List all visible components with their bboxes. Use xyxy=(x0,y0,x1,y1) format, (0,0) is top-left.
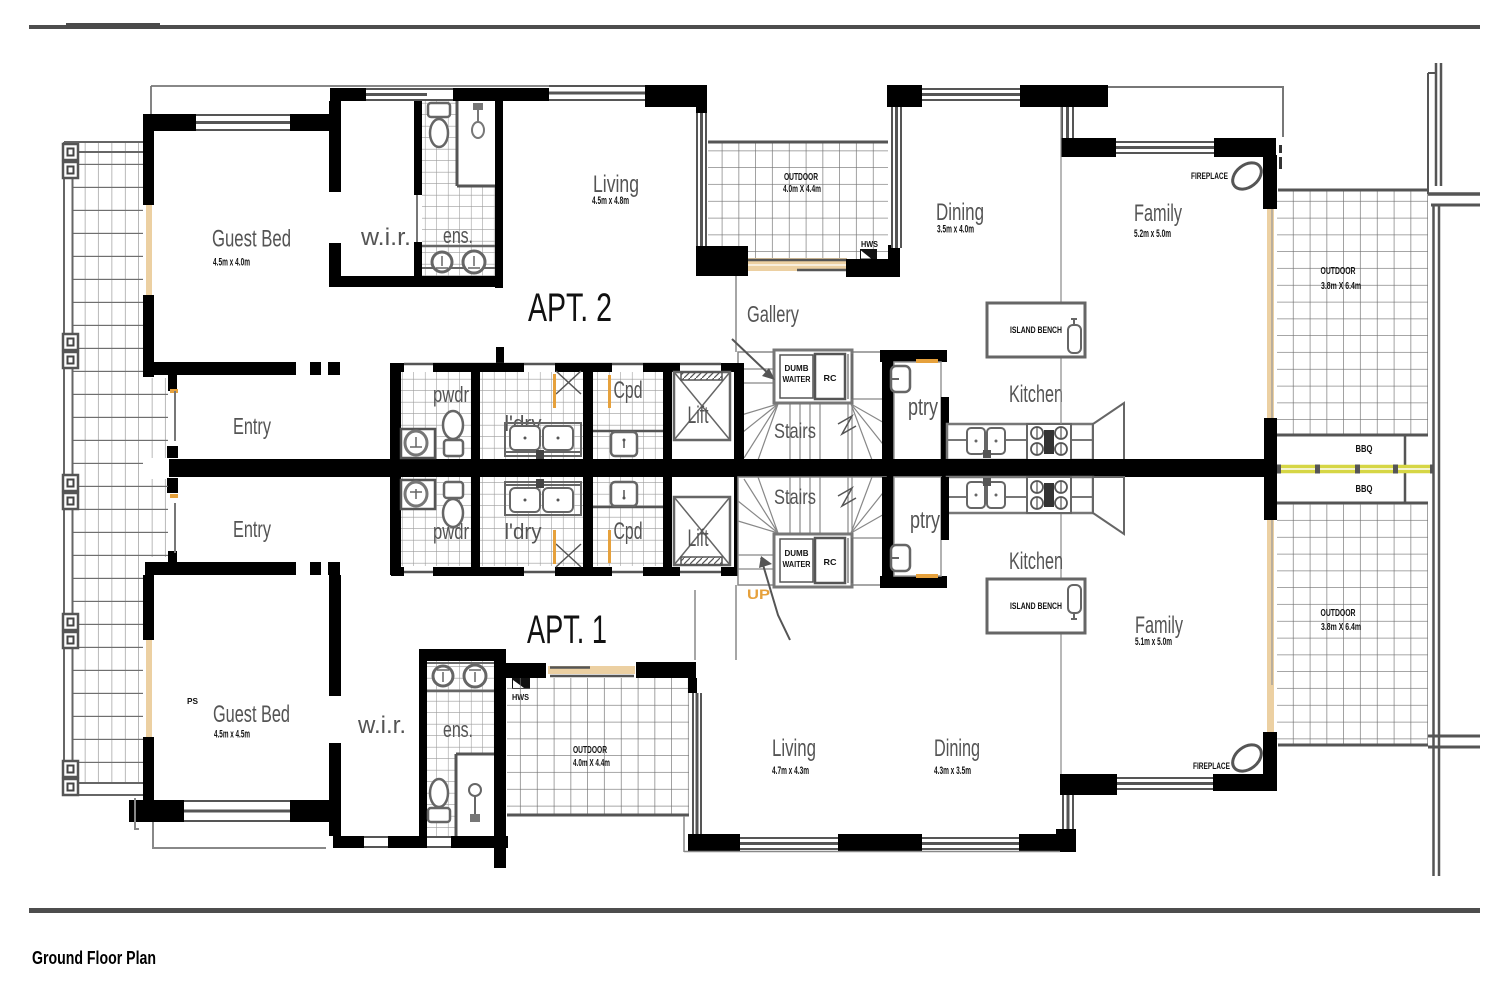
svg-text:OUTDOOR: OUTDOOR xyxy=(573,744,607,756)
svg-text:3.8m X 6.4m: 3.8m X 6.4m xyxy=(1321,621,1361,633)
svg-text:Stairs: Stairs xyxy=(774,486,816,509)
svg-text:Lift: Lift xyxy=(688,525,709,552)
svg-text:DUMB: DUMB xyxy=(785,364,809,373)
svg-text:4.5m x 4.0m: 4.5m x 4.0m xyxy=(213,257,250,269)
svg-text:Living: Living xyxy=(772,735,816,762)
svg-text:OUTDOOR: OUTDOOR xyxy=(1321,265,1356,277)
svg-text:Entry: Entry xyxy=(233,413,271,439)
svg-text:WAITER: WAITER xyxy=(783,375,811,384)
svg-text:Cpd: Cpd xyxy=(614,518,643,545)
svg-text:3.8m X 6.4m: 3.8m X 6.4m xyxy=(1321,280,1361,292)
svg-text:4.5m x 4.5m: 4.5m x 4.5m xyxy=(214,729,250,741)
svg-text:ptry: ptry xyxy=(910,507,940,534)
svg-text:Dining: Dining xyxy=(936,199,984,226)
svg-text:APT. 2: APT. 2 xyxy=(528,286,612,330)
svg-text:4.5m x 4.8m: 4.5m x 4.8m xyxy=(592,195,629,207)
svg-text:UP: UP xyxy=(747,586,770,602)
svg-text:ISLAND BENCH: ISLAND BENCH xyxy=(1010,601,1062,611)
svg-text:ISLAND BENCH: ISLAND BENCH xyxy=(1010,325,1062,335)
svg-text:pwdr: pwdr xyxy=(433,382,469,407)
svg-text:ens.: ens. xyxy=(443,223,473,248)
svg-text:FIREPLACE: FIREPLACE xyxy=(1191,171,1228,181)
svg-text:4.3m x 3.5m: 4.3m x 3.5m xyxy=(934,765,971,777)
svg-text:FIREPLACE: FIREPLACE xyxy=(1193,761,1230,771)
svg-text:APT. 1: APT. 1 xyxy=(527,608,607,652)
svg-text:Cpd: Cpd xyxy=(614,377,643,404)
svg-text:Guest Bed: Guest Bed xyxy=(212,226,291,253)
svg-text:Family: Family xyxy=(1135,612,1183,639)
svg-text:RC: RC xyxy=(824,373,837,383)
svg-text:w.i.r.: w.i.r. xyxy=(357,712,406,739)
svg-text:Kitchen: Kitchen xyxy=(1009,548,1063,575)
svg-text:Kitchen: Kitchen xyxy=(1009,381,1063,408)
svg-text:4.0m X 4.4m: 4.0m X 4.4m xyxy=(573,757,610,769)
svg-text:4.7m x 4.3m: 4.7m x 4.3m xyxy=(772,765,809,777)
svg-text:Guest Bed: Guest Bed xyxy=(213,701,290,728)
svg-text:3.5m x 4.0m: 3.5m x 4.0m xyxy=(937,224,974,236)
svg-text:5.1m x 5.0m: 5.1m x 5.0m xyxy=(1135,636,1172,648)
svg-text:OUTDOOR: OUTDOOR xyxy=(784,171,818,183)
svg-text:Lift: Lift xyxy=(688,402,709,429)
svg-text:5.2m x 5.0m: 5.2m x 5.0m xyxy=(1134,228,1171,240)
svg-text:BBQ: BBQ xyxy=(1356,444,1373,455)
svg-text:Living: Living xyxy=(593,171,639,198)
svg-text:OUTDOOR: OUTDOOR xyxy=(1321,607,1356,619)
svg-text:Entry: Entry xyxy=(233,516,271,542)
svg-text:WAITER: WAITER xyxy=(783,560,811,569)
svg-text:Family: Family xyxy=(1134,200,1182,227)
svg-text:Stairs: Stairs xyxy=(774,420,816,443)
svg-text:BBQ: BBQ xyxy=(1356,484,1373,495)
svg-text:4.0m X 4.4m: 4.0m X 4.4m xyxy=(783,183,821,195)
svg-text:Ground Floor Plan: Ground Floor Plan xyxy=(32,948,156,968)
svg-text:l'dry: l'dry xyxy=(505,519,542,544)
svg-text:RC: RC xyxy=(824,557,837,567)
svg-text:w.i.r.: w.i.r. xyxy=(360,224,411,251)
svg-text:Gallery: Gallery xyxy=(747,301,799,327)
svg-text:DUMB: DUMB xyxy=(785,549,809,558)
svg-text:Dining: Dining xyxy=(934,735,980,762)
svg-text:ptry: ptry xyxy=(908,394,938,421)
svg-text:HWS: HWS xyxy=(861,239,878,249)
svg-text:PS: PS xyxy=(187,696,198,706)
svg-text:ens.: ens. xyxy=(443,717,473,742)
